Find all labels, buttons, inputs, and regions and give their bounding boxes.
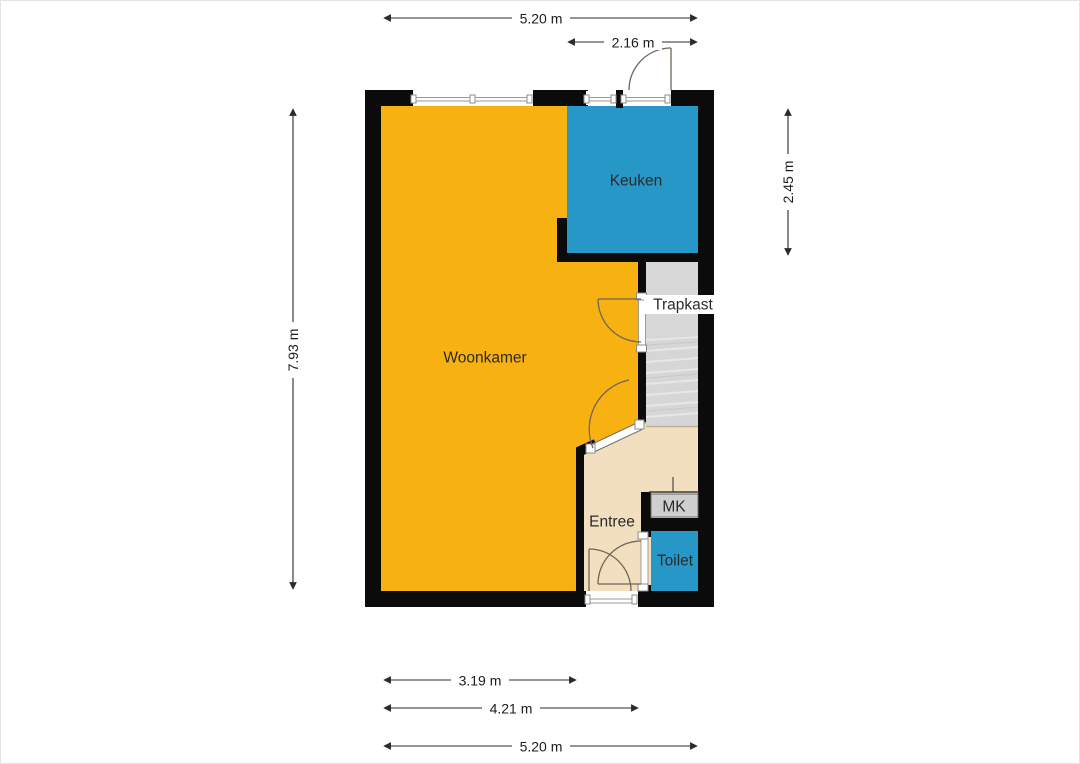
wall-top-mid: [533, 90, 588, 106]
wall-trapkast-upper: [638, 253, 646, 297]
front-door-threshold: [585, 591, 638, 611]
kitchen-exterior-door-swing: [629, 48, 671, 90]
staircase: [646, 336, 699, 427]
label-toilet: Toilet: [657, 553, 694, 570]
wall-entree-left: [576, 448, 584, 591]
dimension-label: 4.21 m: [490, 701, 533, 717]
dimension-label: 2.45 m: [780, 161, 796, 204]
kitchen-door-threshold: [621, 91, 671, 105]
window-icon: [584, 91, 616, 105]
wall-trapkast-lower: [638, 349, 646, 422]
dimension-label: 2.16 m: [612, 35, 655, 51]
dimension-bottom-width: 5.20 m: [384, 738, 697, 755]
label-trapkast: Trapkast: [653, 297, 713, 314]
label-woonkamer: Woonkamer: [443, 350, 526, 367]
label-keuken: Keuken: [610, 173, 663, 190]
dimension-kitchen-height: 2.45 m: [780, 109, 796, 255]
wall-kitchen-bottom: [557, 253, 701, 262]
window-icon: [411, 91, 533, 105]
label-entree: Entree: [589, 514, 635, 531]
dimension-kitchen-width: 2.16 m: [568, 34, 697, 51]
dimension-hall-width: 4.21 m: [384, 700, 638, 717]
wall-left: [365, 90, 381, 607]
floor-plan-svg: Woonkamer Keuken Trapkast Entree MK Toil…: [1, 1, 1080, 764]
label-mk: MK: [662, 499, 686, 516]
dimension-label: 5.20 m: [520, 739, 563, 755]
wall-bottom-right: [638, 591, 714, 607]
dimension-label: 7.93 m: [285, 329, 301, 372]
dimension-label: 5.20 m: [520, 11, 563, 27]
dimension-living-width: 3.19 m: [384, 672, 576, 689]
wall-bottom-left: [365, 591, 586, 607]
dimension-left-height: 7.93 m: [285, 109, 301, 589]
dimension-label: 3.19 m: [459, 673, 502, 689]
floor-plan-canvas: Woonkamer Keuken Trapkast Entree MK Toil…: [0, 0, 1080, 764]
wall-right: [698, 90, 714, 607]
dimension-top-width: 5.20 m: [384, 10, 697, 27]
wall-mk-bottom: [646, 518, 699, 531]
